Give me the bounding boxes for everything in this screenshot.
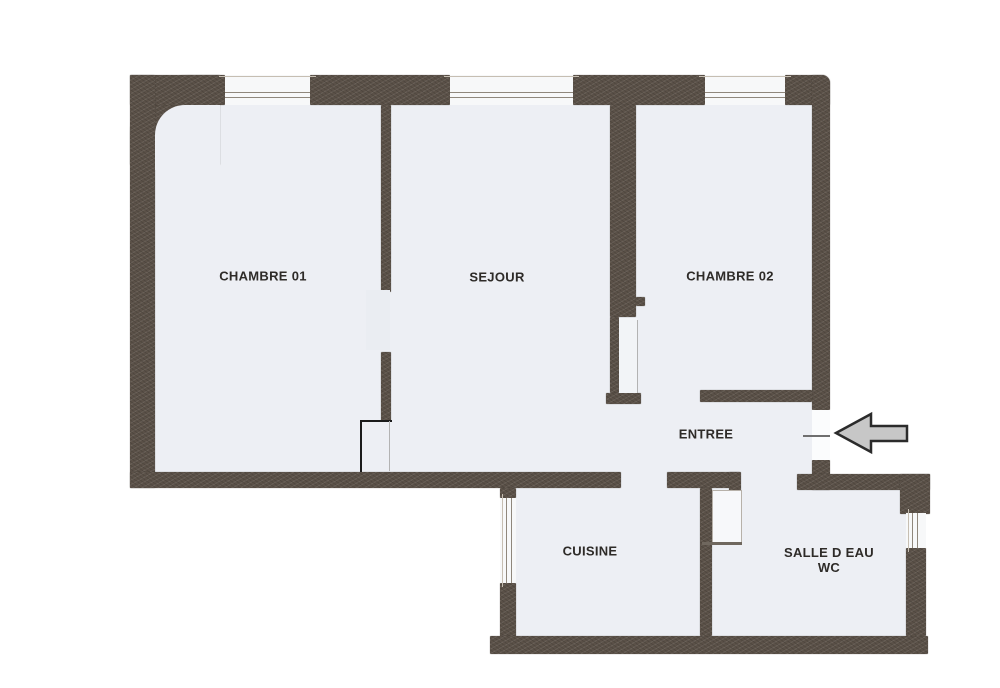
door-salle-deau-line — [702, 542, 742, 545]
window-chambre02 — [705, 75, 785, 105]
room-label-entree: ENTREE — [679, 427, 734, 442]
room-label-chambre01: CHAMBRE 01 — [219, 269, 307, 284]
window-chambre01 — [225, 75, 310, 105]
wall-right-exterior-upper — [812, 75, 830, 410]
wall-sejour-chambre02-thin — [610, 317, 619, 393]
window-salle-deau — [906, 513, 926, 548]
wall-bottom-main-1 — [130, 472, 621, 488]
floor-plan: CHAMBRE 01 SEJOUR CHAMBRE 02 ENTREE CUIS… — [0, 0, 1000, 688]
wall-sejour-chambre02-thick — [610, 105, 636, 317]
wall-corner-topleft-inner — [155, 105, 220, 170]
door-chambre01-line-v — [360, 421, 362, 472]
wall-left-exterior — [130, 75, 155, 488]
wall-chambre02-door-hinge — [636, 297, 645, 306]
wall-top-segment-b — [310, 75, 450, 105]
door-chambre01-jamb — [389, 421, 390, 471]
door-chambre01-swing-area — [366, 290, 390, 350]
door-chambre01-line-h — [360, 420, 392, 422]
wall-bottom-lower — [490, 636, 928, 654]
wall-cuisine-salle-deau — [700, 488, 712, 636]
room-label-salle-deau: SALLE D EAU WC — [784, 545, 874, 575]
window-sejour — [450, 75, 573, 105]
door-salle-deau-leaf — [712, 490, 742, 543]
entrance-arrow-icon — [830, 408, 914, 460]
wall-entree-foot — [606, 393, 641, 404]
room-floor-main — [148, 95, 820, 480]
window-cuisine — [500, 498, 516, 583]
wall-salle-deau-corner — [900, 474, 930, 514]
room-label-chambre02: CHAMBRE 02 — [686, 269, 774, 284]
wall-chambre02-bottom — [700, 390, 812, 402]
door-chambre02-leaf — [619, 318, 637, 393]
door-entrance-threshold — [803, 435, 830, 437]
room-label-salle-deau-line2: WC — [784, 560, 874, 575]
wall-chambre01-sejour-upper — [381, 105, 391, 292]
wall-chambre01-sejour-lower — [381, 352, 391, 421]
door-chambre02-line — [637, 320, 638, 393]
wall-salle-deau-right — [906, 548, 926, 636]
room-label-sejour: SEJOUR — [469, 270, 524, 285]
room-label-cuisine: CUISINE — [563, 544, 618, 559]
wall-top-segment-c — [573, 75, 705, 105]
room-label-salle-deau-line1: SALLE D EAU — [784, 545, 874, 560]
